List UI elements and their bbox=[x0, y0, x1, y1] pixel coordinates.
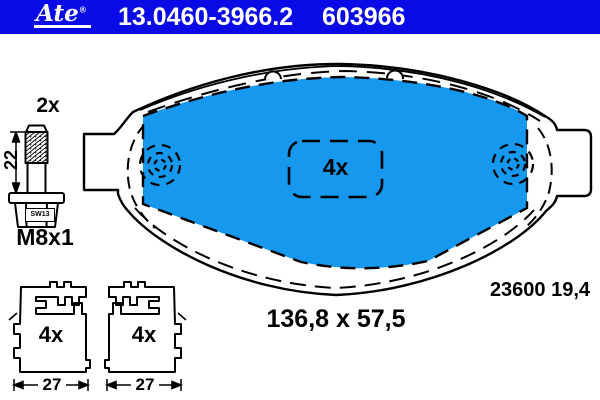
technical-drawing bbox=[0, 0, 600, 400]
bolt-length-label: 22 bbox=[2, 142, 22, 178]
bolt-flange bbox=[9, 193, 64, 203]
clip-right-width-label: 27 bbox=[131, 376, 159, 394]
bolt-thread-label: M8x1 bbox=[6, 225, 84, 249]
bolt-wrench-size-label: SW13 bbox=[25, 208, 55, 222]
pad-notch-right bbox=[387, 70, 403, 79]
pad-size-label: 136,8 x 57,5 bbox=[250, 306, 422, 332]
bolt-shaft bbox=[28, 163, 46, 193]
clip-left-quantity-label: 4x bbox=[25, 323, 77, 346]
bolt-quantity-label: 2x bbox=[26, 95, 70, 117]
pad-reference-label: 23600 19,4 bbox=[486, 280, 594, 301]
bolt-thread-section bbox=[26, 132, 48, 163]
pad-notch-left bbox=[265, 71, 281, 80]
catalog-page: Ate® 13.0460-3966.2 603966 bbox=[0, 0, 600, 400]
pad-quantity-label: 4x bbox=[289, 155, 382, 179]
clip-left-width-label: 27 bbox=[38, 376, 66, 394]
clip-right-quantity-label: 4x bbox=[118, 323, 170, 346]
